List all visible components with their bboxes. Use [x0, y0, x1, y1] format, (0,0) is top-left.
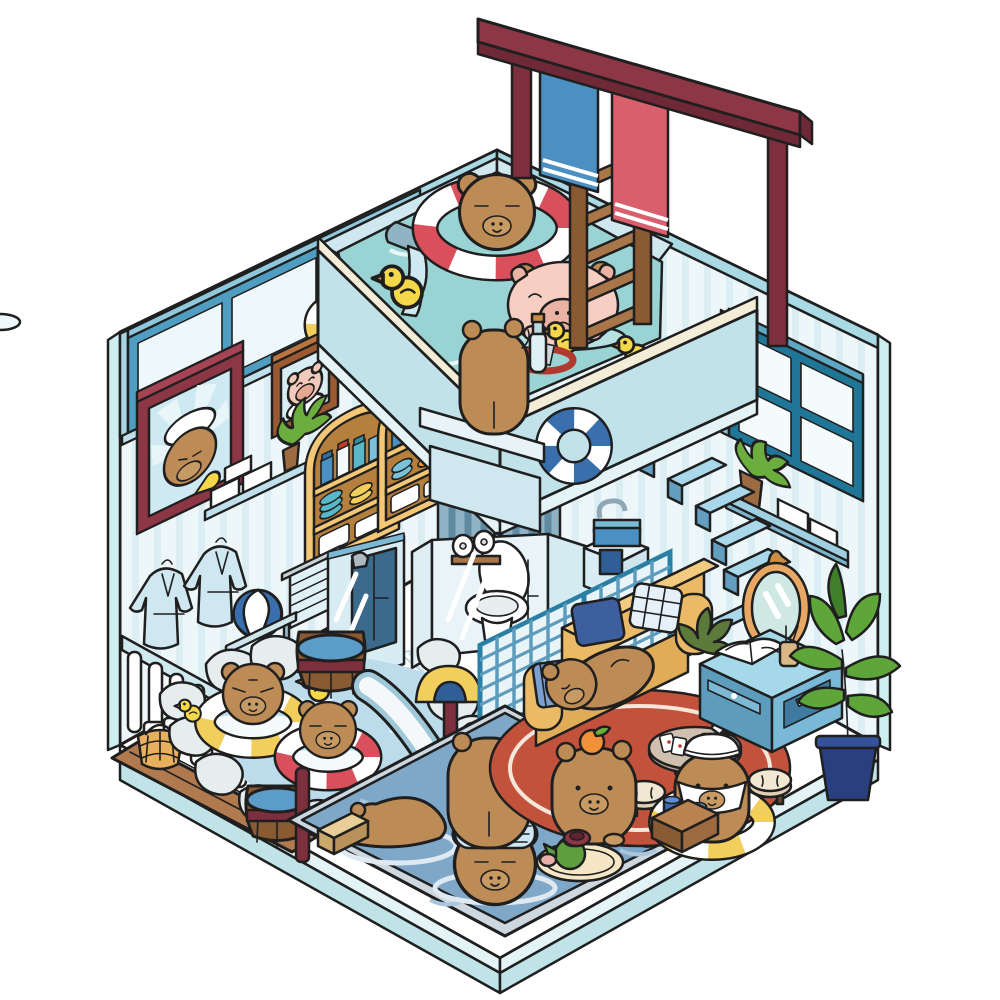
plant-pot [816, 736, 880, 800]
scene-canvas: Capybara Bathhouse — Isometric Cutaway I… [0, 0, 1000, 1000]
left-wall-outer-edge [108, 332, 120, 750]
capybara-with-orange-on-head [552, 727, 636, 846]
sailor-towel-cap [684, 734, 740, 759]
right-wall-outer-edge [878, 335, 890, 750]
ramune-bottle [530, 314, 546, 372]
sign-post-right [768, 110, 787, 346]
illustration-capybara-bathhouse: Capybara Bathhouse — Isometric Cutaway I… [0, 0, 1000, 1000]
toilet-paper-shelf [452, 531, 500, 564]
sign-bar-end [800, 112, 812, 144]
pillow-navy [571, 597, 626, 647]
red-bowl-inner [570, 832, 584, 840]
pillow-plaid [629, 583, 683, 634]
